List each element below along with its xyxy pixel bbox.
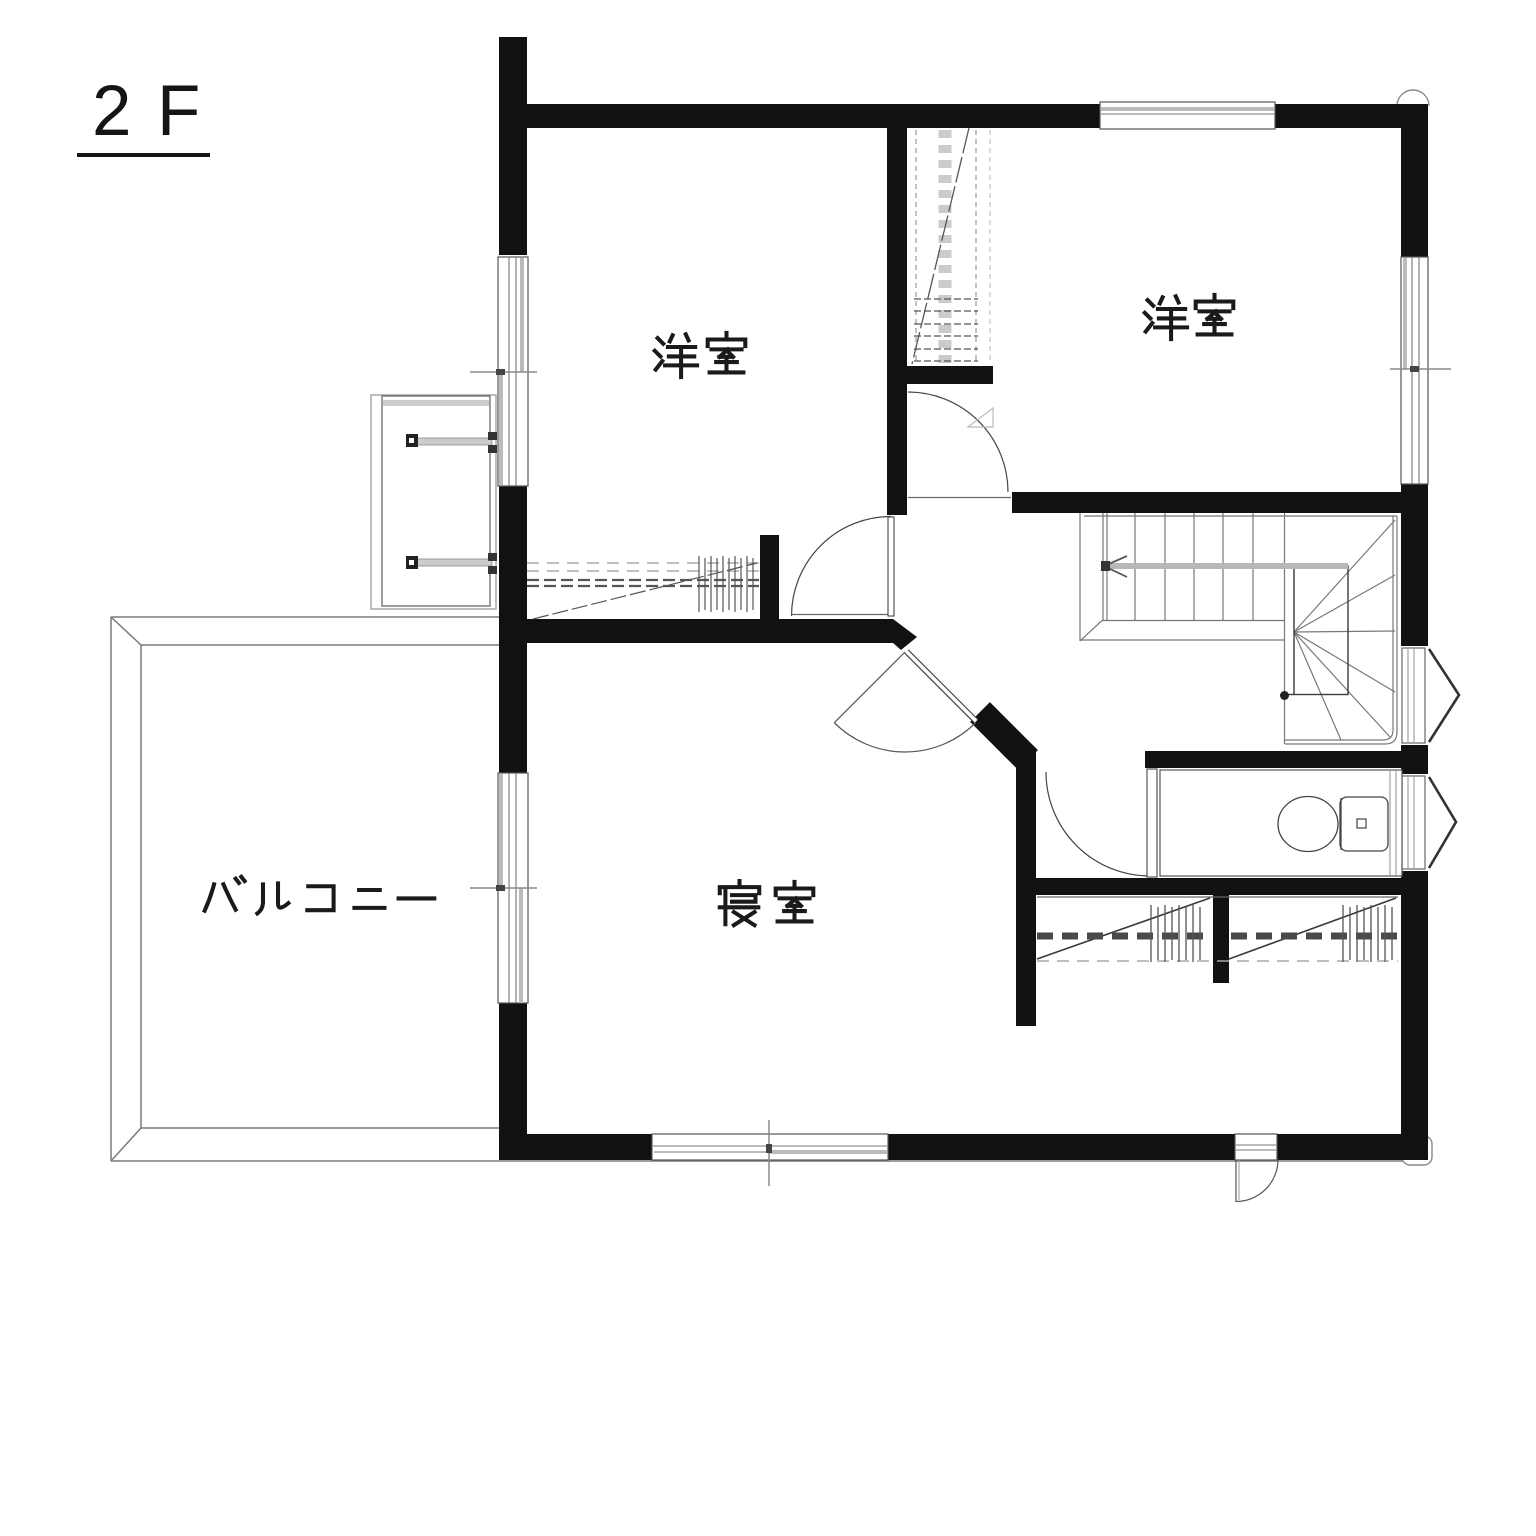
svg-text:2: 2 — [92, 72, 132, 151]
svg-text:F: F — [157, 72, 200, 151]
